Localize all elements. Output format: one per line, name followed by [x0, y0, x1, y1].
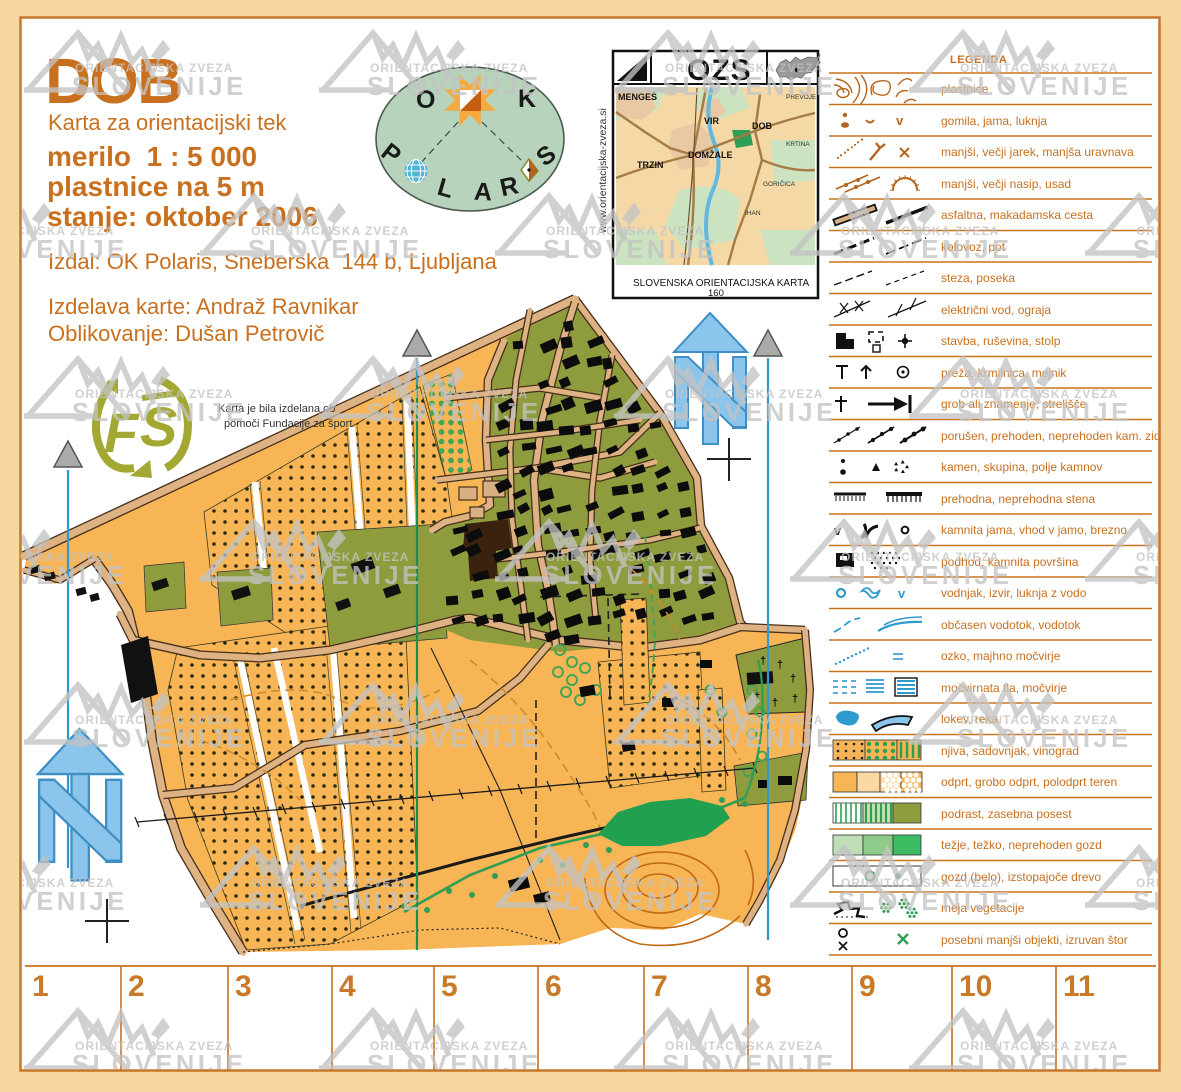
svg-text:porušen, prehoden, neprehoden: porušen, prehoden, neprehoden kam. zid	[941, 429, 1161, 443]
svg-text:2: 2	[128, 970, 145, 1003]
svg-text:A: A	[473, 178, 493, 207]
svg-text:SLOVENIJE: SLOVENIJE	[957, 725, 1132, 753]
svg-text:†: †	[777, 659, 783, 671]
svg-text:8: 8	[755, 970, 772, 1003]
svg-text:Oblikovanje: Dušan Petrovič: Oblikovanje: Dušan Petrovič	[48, 321, 324, 346]
svg-text:plastnice na 5 m: plastnice na 5 m	[47, 171, 265, 202]
svg-text:†: †	[772, 697, 778, 709]
svg-text:manjši, večji jarek, manjša ur: manjši, večji jarek, manjša uravnava	[941, 145, 1134, 159]
svg-text:podrast, zasebna posest: podrast, zasebna posest	[941, 807, 1072, 821]
svg-text:DOMŽALE: DOMŽALE	[688, 149, 733, 160]
svg-text:†: †	[760, 655, 766, 667]
svg-text:SLOVENIJE: SLOVENIJE	[72, 73, 247, 101]
svg-text:10: 10	[959, 970, 992, 1003]
svg-text:11: 11	[1063, 970, 1095, 1003]
svg-text:kamnita jama, vhod v jamo, bre: kamnita jama, vhod v jamo, brezno	[941, 523, 1127, 537]
svg-text:odprt, grobo odprt, polodprt t: odprt, grobo odprt, polodprt teren	[941, 775, 1117, 789]
svg-text:gomila, jama, luknja: gomila, jama, luknja	[941, 114, 1047, 128]
svg-text:občasen vodotok, vodotok: občasen vodotok, vodotok	[941, 618, 1081, 632]
svg-text:GORIČICA: GORIČICA	[763, 179, 796, 188]
svg-text:merilo 1 : 5 000: merilo 1 : 5 000	[47, 141, 257, 172]
svg-text:kamen, skupina, polje kamnov: kamen, skupina, polje kamnov	[941, 460, 1102, 474]
svg-text:SLOVENIJE: SLOVENIJE	[957, 73, 1132, 101]
svg-text:9: 9	[859, 970, 876, 1003]
svg-text:Karta za orientacijski tek: Karta za orientacijski tek	[48, 110, 287, 135]
svg-text:SLOVENIJE: SLOVENIJE	[838, 236, 1013, 264]
svg-text:5: 5	[441, 970, 458, 1003]
svg-text:prehodna, neprehodna stena: prehodna, neprehodna stena	[941, 492, 1095, 506]
svg-text:SLOVENIJE: SLOVENIJE	[662, 399, 837, 427]
svg-text:SLOVENIJE: SLOVENIJE	[248, 236, 423, 264]
svg-text:posebni manjši objekti, izruva: posebni manjši objekti, izruvan štor	[941, 933, 1128, 947]
svg-text:SLOVENIJE: SLOVENIJE	[248, 888, 423, 916]
svg-text:težje, težko, neprehoden gozd: težje, težko, neprehoden gozd	[941, 838, 1102, 852]
svg-text:†: †	[792, 693, 798, 705]
svg-text:4: 4	[339, 970, 356, 1003]
svg-text:1: 1	[32, 970, 49, 1003]
svg-text:6: 6	[545, 970, 562, 1003]
svg-text:steza, poseka: steza, poseka	[941, 271, 1015, 285]
svg-text:SLOVENIJE: SLOVENIJE	[662, 725, 837, 753]
svg-text:SLOVENIJE: SLOVENIJE	[72, 725, 247, 753]
svg-text:Izdelava karte: Andraž Ravnika: Izdelava karte: Andraž Ravnikar	[48, 294, 359, 319]
svg-text:stavba, ruševina, stolp: stavba, ruševina, stolp	[941, 334, 1061, 348]
svg-text:KRTINA: KRTINA	[786, 141, 810, 148]
svg-text:SLOVENIJE: SLOVENIJE	[543, 562, 718, 590]
svg-text:SLOVENIJE: SLOVENIJE	[543, 236, 718, 264]
svg-text:SLOVENIJE: SLOVENIJE	[662, 73, 837, 101]
svg-text:SLOVENIJE: SLOVENIJE	[367, 73, 542, 101]
svg-text:IHAN: IHAN	[745, 210, 761, 217]
svg-text:TRZIN: TRZIN	[637, 160, 664, 170]
svg-text:160: 160	[708, 288, 724, 299]
svg-text:asfaltna, makadamska cesta: asfaltna, makadamska cesta	[941, 208, 1093, 222]
svg-text:DOB: DOB	[752, 121, 773, 131]
svg-text:ozko, majhno močvirje: ozko, majhno močvirje	[941, 649, 1061, 663]
svg-text:SLOVENIJE: SLOVENIJE	[838, 888, 1013, 916]
svg-text:†: †	[790, 673, 796, 685]
svg-text:v: v	[896, 113, 904, 128]
svg-text:SLOVENIJE: SLOVENIJE	[72, 399, 247, 427]
svg-text:SLOVENIJE: SLOVENIJE	[543, 888, 718, 916]
svg-text:SLOVENIJE: SLOVENIJE	[838, 562, 1013, 590]
svg-text:3: 3	[235, 970, 252, 1003]
svg-text:7: 7	[651, 970, 668, 1003]
svg-text:VIR: VIR	[704, 116, 720, 126]
svg-text:SLOVENIJE: SLOVENIJE	[367, 725, 542, 753]
svg-text:SLOVENIJE: SLOVENIJE	[367, 399, 542, 427]
svg-text:manjši, večji nasip, usad: manjši, večji nasip, usad	[941, 177, 1071, 191]
svg-text:električni vod, ograja: električni vod, ograja	[941, 303, 1051, 317]
svg-text:SLOVENIJE: SLOVENIJE	[248, 562, 423, 590]
svg-text:SLOVENIJE: SLOVENIJE	[957, 399, 1132, 427]
